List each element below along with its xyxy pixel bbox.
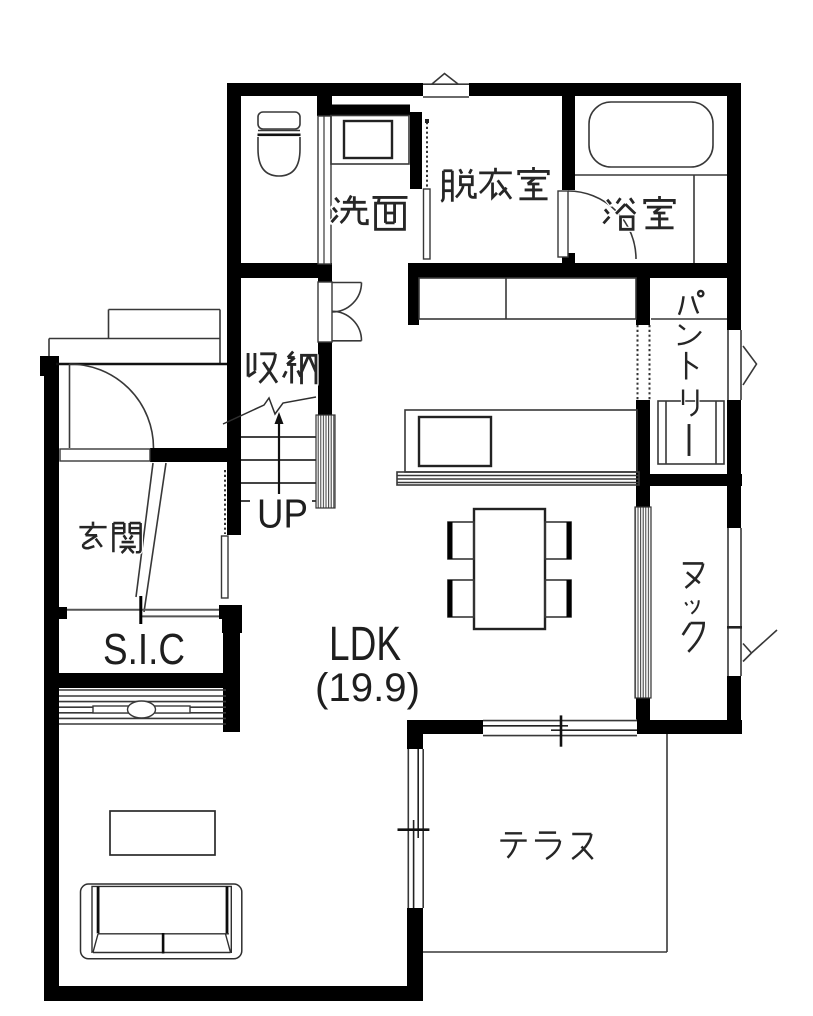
svg-text:S.I.C: S.I.C xyxy=(103,625,185,674)
svg-text:UP: UP xyxy=(257,491,308,537)
svg-text:LDK: LDK xyxy=(329,618,401,671)
svg-text:(19.9): (19.9) xyxy=(315,666,420,710)
